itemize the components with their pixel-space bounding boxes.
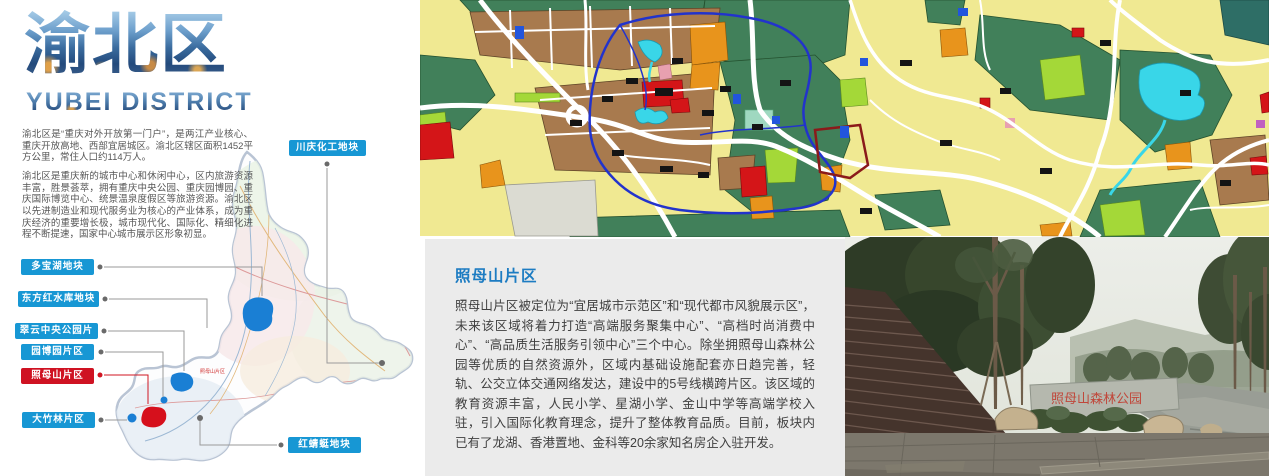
plot-label-duobaohu: 多宝湖地块 (21, 259, 94, 275)
section-title: 照母山片区 (455, 264, 815, 286)
plot-label-dazhulin: 大竹林片区 (22, 412, 95, 428)
page-subtitle: YUBEI DISTRICT (26, 88, 253, 117)
section-body: 照母山片区被定位为“宜居城市示范区”和“现代都市风貌展示区”，未来该区域将着力打… (455, 297, 815, 453)
intro-paragraph-1: 渝北区是“重庆对外开放第一门户”，是两江产业核心、重庆开放高地、西部宜居城区。渝… (22, 129, 253, 164)
plot-label-dongfanghong: 东方红水库地块 (18, 291, 99, 307)
page: { "hero": { "title": "渝北区", "subtitle": … (0, 0, 1269, 476)
plot-label-hongqingting: 红蜻蜓地块 (288, 437, 361, 453)
section-panel: 照母山片区 照母山片区被定位为“宜居城市示范区”和“现代都市风貌展示区”，未来该… (425, 239, 845, 476)
wall-inscription: 照母山森林公园 (1051, 392, 1142, 407)
district-map-inline-note: 照母山片区 (200, 368, 225, 375)
intro-paragraph-2: 渝北区是重庆新的城市中心和休闲中心，区内旅游资源丰富，胜景荟萃，拥有重庆中央公园… (22, 171, 253, 241)
left-panel: 渝北区 YUBEI DISTRICT 渝北区是“重庆对外开放第一门户”，是两江产… (0, 0, 420, 476)
intro-text: 渝北区是“重庆对外开放第一门户”，是两江产业核心、重庆开放高地、西部宜居城区。渝… (22, 129, 253, 248)
zoning-map (420, 0, 1269, 237)
plot-label-chuanqing: 川庆化工地块 (289, 140, 366, 156)
park-photo: 照母山森林公园 (845, 237, 1269, 476)
plot-label-cuiyun: 翠云中央公园片区 (15, 323, 98, 339)
plot-label-yuanboyuan: 园博园片区 (21, 344, 94, 360)
page-title: 渝北区 (24, 10, 228, 79)
plot-label-zhaomushan: 照母山片区 (21, 368, 94, 384)
